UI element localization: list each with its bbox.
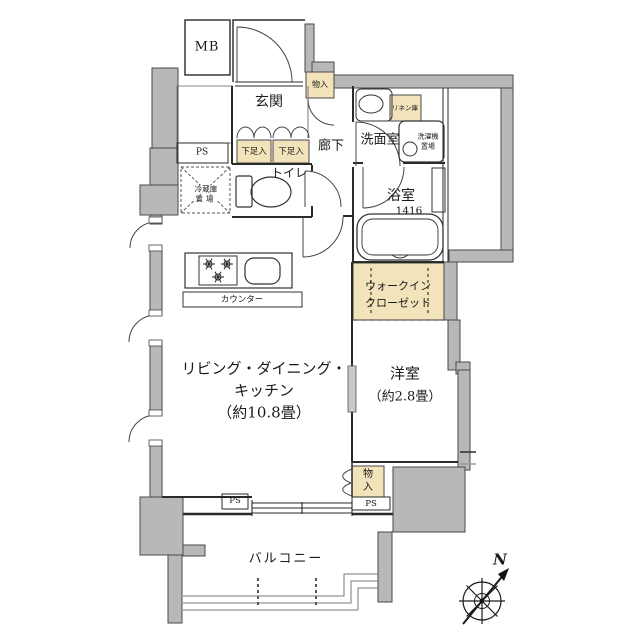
label-ps-bottom-left: PS [229, 497, 241, 506]
label-bedroom-line2: （約2.8畳） [369, 391, 442, 404]
washbasin [356, 89, 392, 121]
label-ps-top: PS [196, 149, 208, 158]
label-hall-closet: 物入 [312, 81, 328, 89]
exterior-walls [140, 24, 513, 623]
label-entrance: 玄関 [255, 95, 283, 109]
label-mb: MB [195, 41, 220, 54]
label-balcony: バルコニー [249, 553, 324, 566]
label-toilet: トイレ [271, 167, 307, 179]
label-linen: リネン庫 [392, 105, 418, 112]
label-counter: カウンター [221, 296, 264, 305]
label-shoe-right: 下足入 [278, 148, 304, 157]
label-bathroom-size: 1416 [396, 206, 423, 217]
label-wic-line1: ウォークイン [365, 281, 431, 292]
label-washroom: 洗面室 [360, 134, 399, 147]
label-compass-north: N [493, 553, 507, 568]
label-fridge-line2: 置場 [195, 195, 218, 203]
label-wic-line2: クローゼット [365, 298, 431, 309]
toilet-fixture [236, 176, 291, 207]
label-bedroom-closet-char2: 入 [363, 483, 373, 493]
stove-burners [203, 259, 233, 282]
label-ldk-line2: キッチン [234, 384, 294, 399]
balcony-railing [183, 574, 378, 610]
label-ldk-line3: （約10.8畳） [217, 406, 310, 421]
compass-rose [459, 568, 509, 624]
bedroom-sliding-door [348, 366, 356, 412]
label-fridge-line1: 冷蔵庫 [194, 185, 219, 193]
floor-plan-drawing [0, 0, 640, 640]
label-ldk-line1: リビング・ダイニング・ [181, 362, 346, 377]
label-bathroom: 浴室 [387, 189, 415, 203]
label-bedroom-closet-char1: 物 [363, 470, 373, 480]
label-washer-line2: 置場 [421, 144, 435, 151]
label-bedroom-line1: 洋室 [390, 367, 420, 382]
label-hallway: 廊下 [318, 140, 344, 153]
window-frames [149, 217, 162, 446]
washing-machine-space [399, 121, 444, 162]
label-shoe-left: 下足入 [241, 148, 267, 157]
label-washer-line1: 洗濯機 [418, 134, 439, 141]
floor-plan: MB 玄関 物入 廊下 洗面室 リネン庫 洗濯機 置場 下足入 下足入 トイレ … [0, 0, 640, 640]
label-ps-bottom-right: PS [365, 500, 377, 509]
